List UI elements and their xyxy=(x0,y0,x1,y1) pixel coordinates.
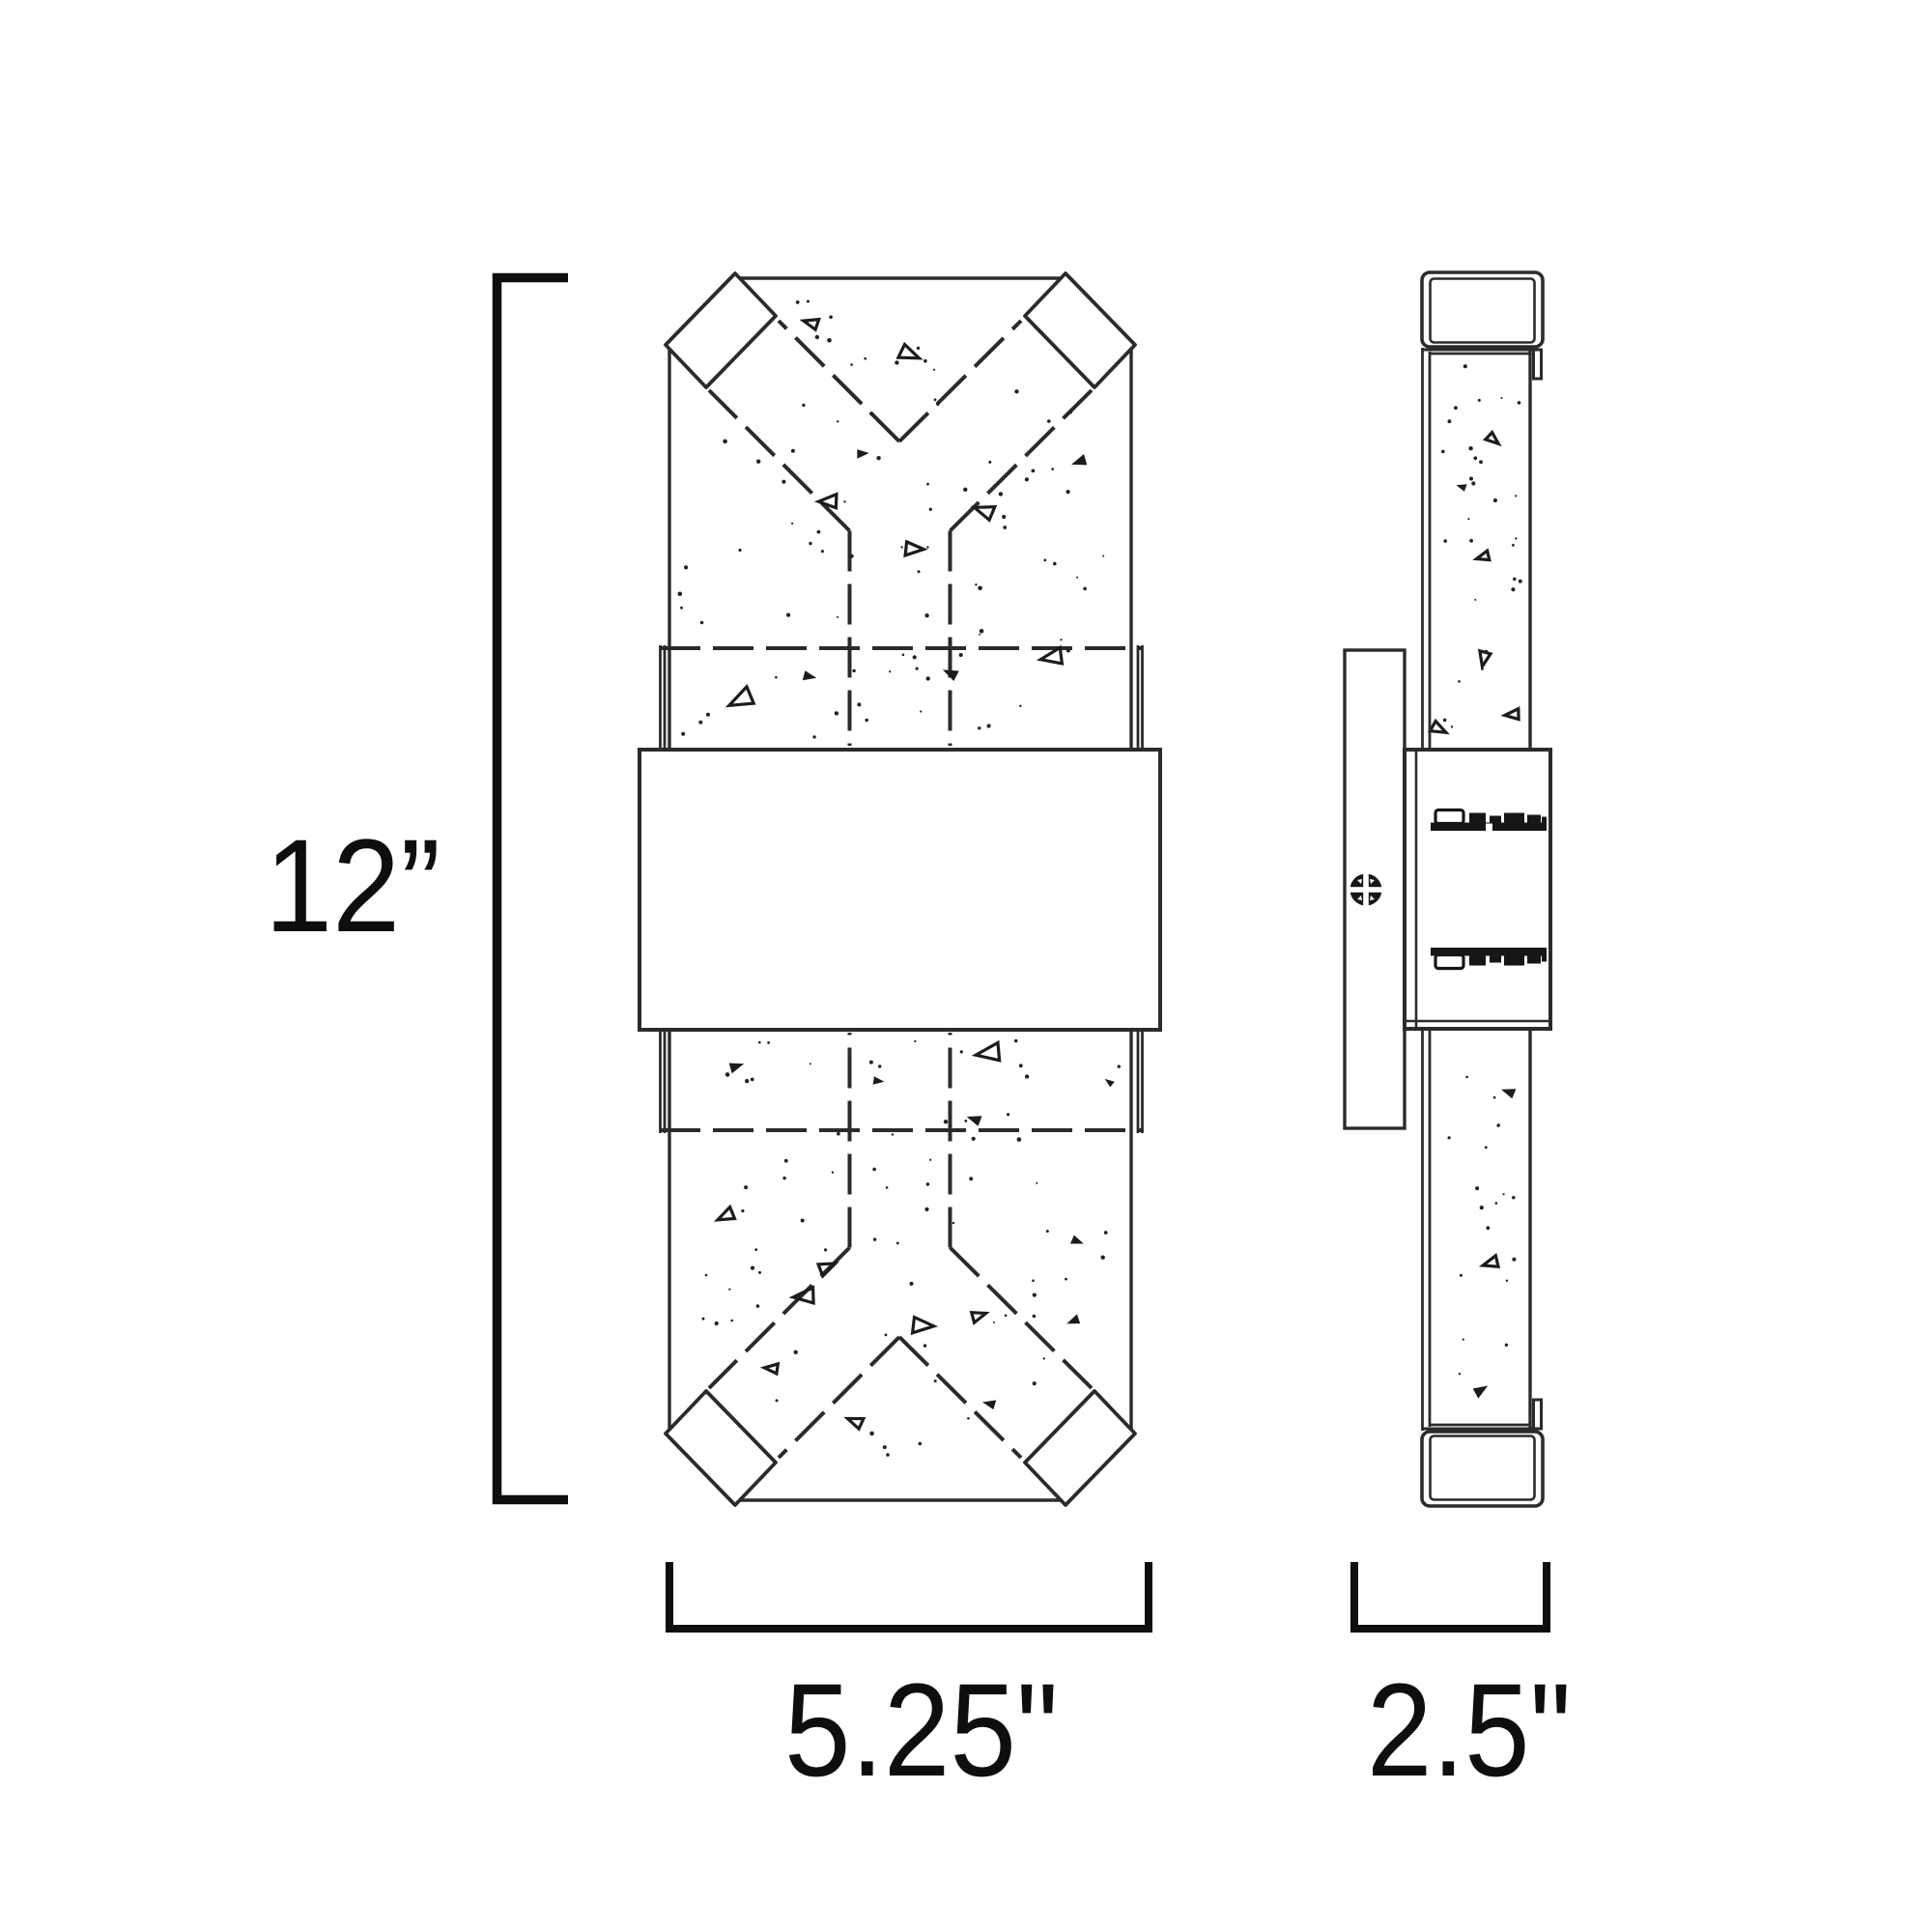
svg-text:12”: 12” xyxy=(265,811,440,959)
svg-text:5.25": 5.25" xyxy=(784,1656,1059,1804)
svg-text:2.5": 2.5" xyxy=(1367,1657,1572,1804)
